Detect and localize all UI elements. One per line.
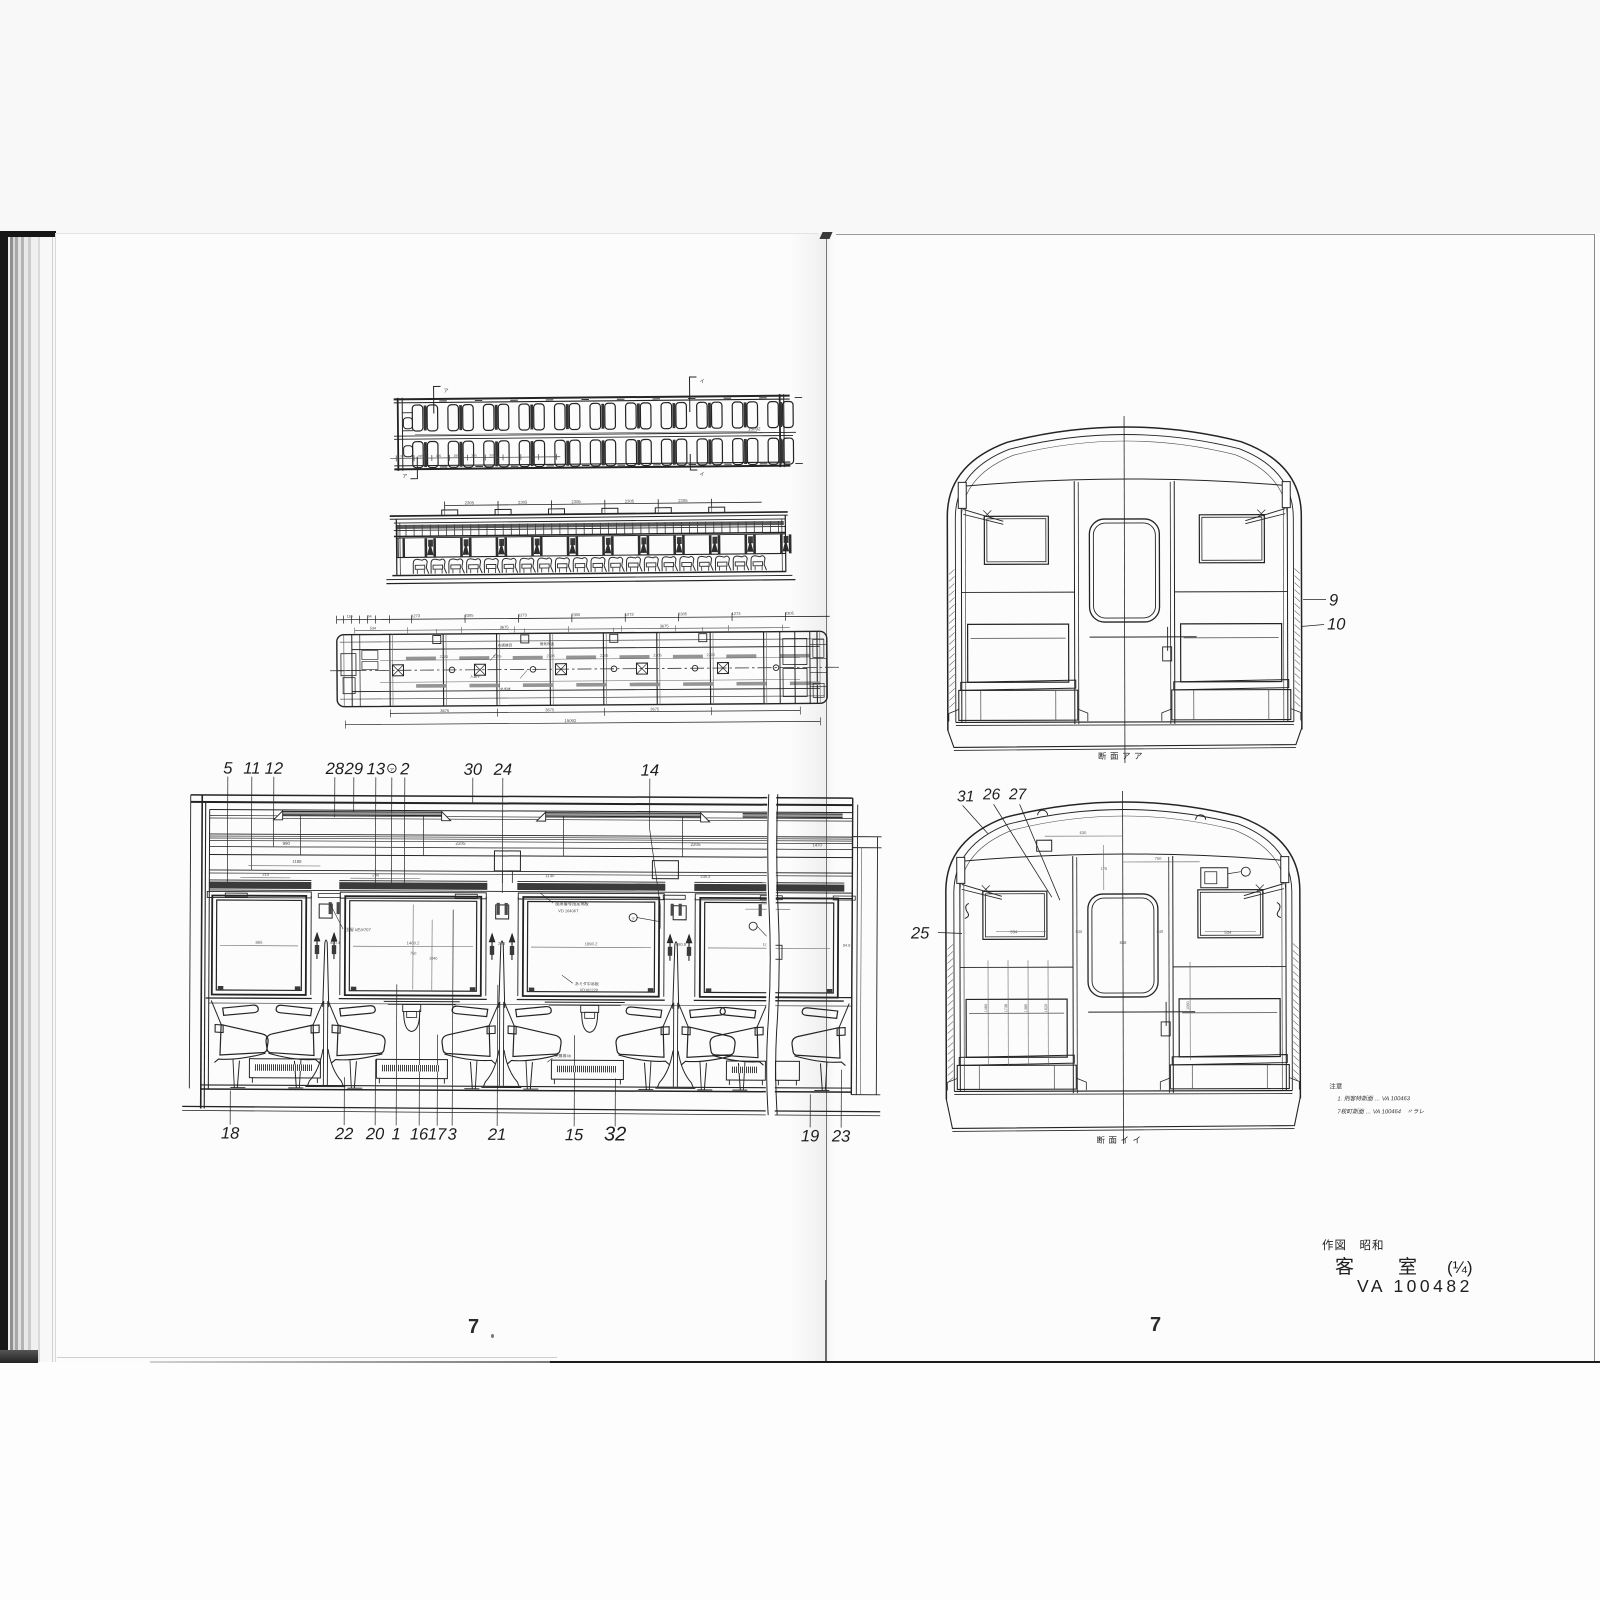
svg-text:1273: 1273	[411, 613, 421, 618]
svg-text:注意: 注意	[1329, 1081, 1343, 1090]
svg-text:1130: 1130	[545, 873, 555, 878]
svg-text:25: 25	[910, 925, 930, 943]
svg-text:15: 15	[565, 1126, 584, 1144]
svg-text:1738: 1738	[1004, 1004, 1008, 1012]
svg-text:30: 30	[464, 761, 483, 779]
svg-text:管気吹出: 管気吹出	[540, 641, 555, 646]
svg-text:2205: 2205	[546, 654, 554, 658]
svg-text:29: 29	[344, 760, 363, 778]
svg-text:3: 3	[447, 1126, 457, 1144]
svg-text:28: 28	[325, 760, 345, 778]
svg-text:3675: 3675	[650, 706, 660, 711]
svg-text:1273: 1273	[625, 612, 635, 617]
svg-text:VD 16406T: VD 16406T	[558, 908, 579, 913]
svg-text:2305: 2305	[785, 611, 795, 616]
svg-text:534: 534	[370, 626, 376, 630]
svg-text:26: 26	[982, 786, 1001, 803]
svg-text:630: 630	[1080, 830, 1087, 835]
svg-text:395: 395	[436, 454, 442, 458]
svg-text:1470: 1470	[813, 842, 823, 847]
svg-text:文展習4b: 文展習4b	[554, 1052, 571, 1058]
svg-text:2305: 2305	[571, 612, 581, 617]
svg-text:内張継目: 内張継目	[498, 643, 512, 648]
svg-text:12: 12	[265, 760, 283, 778]
svg-text:テ: テ	[631, 916, 635, 922]
svg-text:2205: 2205	[707, 653, 715, 657]
svg-text:170: 170	[1101, 867, 1107, 871]
svg-text:2305: 2305	[625, 499, 635, 504]
svg-text:2205: 2205	[691, 842, 702, 847]
svg-text:1480: 1480	[984, 1004, 988, 1012]
svg-text:14: 14	[641, 762, 659, 780]
svg-text:2305: 2305	[518, 500, 528, 505]
svg-text:玉挺 VE/#707: 玉挺 VE/#707	[345, 927, 371, 932]
svg-text:座席番号指定揭板: 座席番号指定揭板	[555, 900, 589, 907]
svg-text:吊手棒: 吊手棒	[500, 687, 511, 692]
svg-text:750: 750	[410, 951, 416, 955]
svg-text:11: 11	[243, 760, 260, 778]
svg-text:1890.2: 1890.2	[585, 941, 599, 946]
svg-text:ア: ア	[402, 474, 407, 480]
svg-text:24: 24	[493, 761, 512, 779]
svg-text:2205: 2205	[456, 841, 467, 846]
svg-text:2205: 2205	[653, 653, 661, 657]
svg-text:20: 20	[365, 1125, 385, 1143]
svg-text:16: 16	[410, 1125, 429, 1143]
svg-text:VD162228: VD162228	[580, 988, 598, 992]
svg-text:210: 210	[262, 872, 269, 877]
svg-text:19: 19	[801, 1127, 819, 1145]
svg-text:84.8: 84.8	[843, 944, 850, 948]
svg-text:2305: 2305	[678, 498, 688, 503]
svg-text:534: 534	[1010, 929, 1018, 934]
svg-text:530: 530	[1076, 929, 1083, 934]
svg-text:395: 395	[454, 454, 460, 458]
svg-text:23: 23	[831, 1128, 851, 1146]
svg-text:534: 534	[1224, 930, 1232, 935]
svg-text:750: 750	[1155, 856, 1162, 861]
svg-text:イ: イ	[699, 379, 704, 385]
svg-text:15092: 15092	[565, 718, 577, 723]
svg-text:2: 2	[399, 760, 409, 778]
svg-text:9: 9	[1329, 591, 1338, 609]
svg-text:10: 10	[1327, 615, 1346, 633]
svg-text:2305: 2305	[465, 500, 475, 505]
svg-text:110: 110	[347, 615, 353, 619]
svg-text:31: 31	[957, 788, 974, 805]
svg-text:395: 395	[471, 454, 477, 458]
svg-text:17: 17	[428, 1126, 447, 1144]
svg-text:1273: 1273	[518, 612, 528, 617]
svg-text:395: 395	[418, 454, 424, 458]
svg-text:1040: 1040	[429, 957, 437, 961]
svg-text:ア: ア	[444, 388, 449, 394]
svg-text:2205: 2205	[440, 655, 448, 659]
svg-text:3675: 3675	[545, 707, 555, 712]
svg-text:1400.2: 1400.2	[407, 940, 421, 945]
svg-text:1188: 1188	[292, 859, 302, 864]
svg-text:13: 13	[367, 760, 386, 778]
svg-text:イ: イ	[699, 472, 704, 478]
svg-text:230: 230	[372, 872, 379, 877]
svg-text:1. 刑客特斯面 … VA 100463: 1. 刑客特斯面 … VA 100463	[1337, 1095, 1410, 1102]
svg-text:1620: 1620	[1044, 1004, 1048, 1012]
svg-text:2205: 2205	[600, 654, 608, 658]
svg-text:1060: 1060	[1186, 1001, 1190, 1009]
svg-text:2305: 2305	[678, 611, 688, 616]
svg-text:18: 18	[221, 1125, 240, 1143]
svg-text:395: 395	[489, 453, 495, 457]
svg-text:1273: 1273	[732, 611, 742, 616]
svg-text:1385: 1385	[1024, 1004, 1028, 1012]
svg-text:入振子: 入振子	[470, 674, 481, 679]
svg-text:230.2: 230.2	[700, 874, 711, 879]
svg-text:865: 865	[256, 940, 264, 945]
svg-text:3675: 3675	[440, 708, 450, 713]
svg-text:21: 21	[487, 1126, 506, 1144]
svg-text:990: 990	[283, 841, 291, 846]
svg-text:断面アア: 断面アア	[1098, 751, 1146, 761]
svg-text:2305: 2305	[465, 613, 475, 618]
svg-text:640: 640	[1157, 929, 1164, 934]
svg-text:15092: 15092	[748, 426, 761, 431]
svg-text:5: 5	[223, 760, 233, 778]
svg-text:断面イイ: 断面イイ	[1096, 1135, 1144, 1145]
svg-text:838: 838	[1120, 940, 1127, 945]
svg-text:32: 32	[604, 1123, 626, 1145]
svg-text:7枚町斯面 … VA 100464 〃ラレ: 7枚町斯面 … VA 100464 〃ラレ	[1337, 1108, 1424, 1115]
svg-text:395: 395	[400, 454, 406, 458]
svg-text:2305: 2305	[571, 499, 581, 504]
svg-text:3675: 3675	[500, 625, 510, 630]
svg-text:あミダ中吊板: あミダ中吊板	[575, 980, 599, 986]
svg-text:27: 27	[1008, 786, 1028, 803]
svg-text:3675: 3675	[660, 623, 670, 628]
svg-text:54: 54	[368, 614, 372, 618]
svg-text:1: 1	[391, 1125, 400, 1143]
svg-text:22: 22	[334, 1125, 353, 1143]
